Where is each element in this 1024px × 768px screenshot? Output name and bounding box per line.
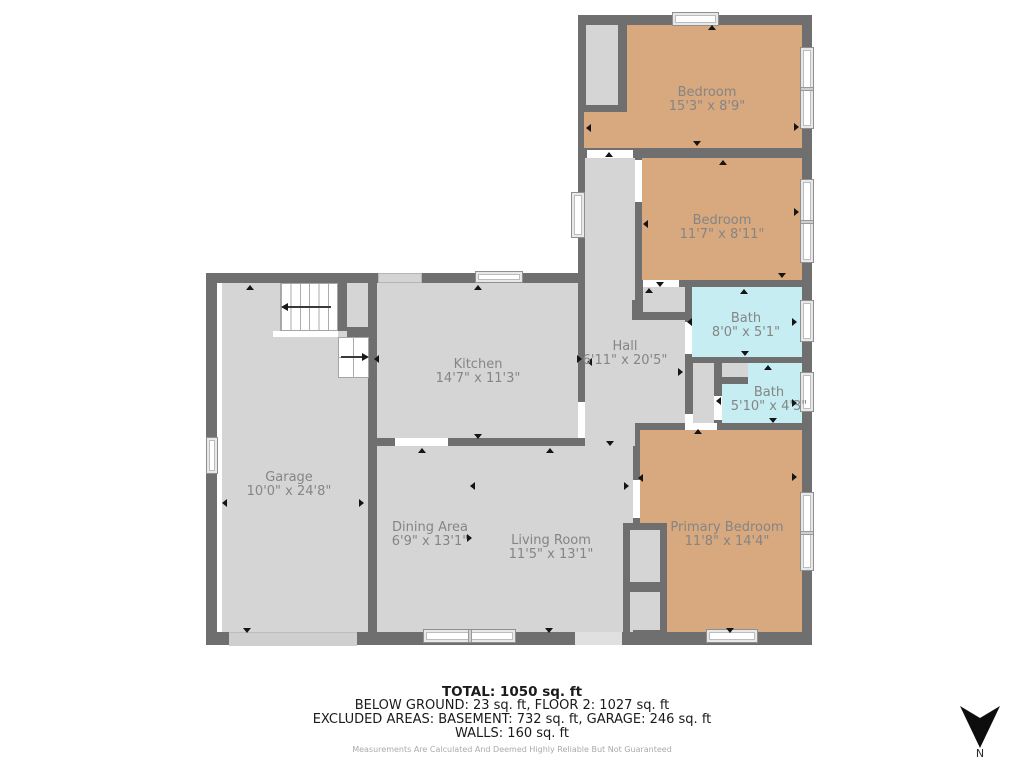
window-bedroom1-top	[672, 12, 719, 26]
room-name: Kitchen	[436, 358, 521, 372]
window-hall-left	[571, 192, 585, 238]
floor-passage	[693, 363, 714, 423]
arrow-marker	[474, 285, 482, 290]
opening-kitchen-dining	[395, 438, 448, 446]
arrow-marker	[678, 368, 683, 376]
window-bedroom1-right	[800, 47, 814, 129]
floor-closet-primary-1	[630, 530, 660, 582]
arrow-marker	[606, 441, 614, 446]
arrow-marker	[719, 160, 727, 165]
arrow-marker	[794, 123, 799, 131]
door-bedroom2	[635, 160, 642, 202]
arrow-marker	[624, 482, 629, 490]
wall-stairs-v	[338, 283, 347, 331]
arrow-marker	[645, 288, 653, 293]
arrow-marker	[792, 318, 797, 326]
arrow-marker	[708, 25, 716, 30]
room-dims: 8'0" x 5'1"	[712, 326, 780, 340]
summary-total: TOTAL: 1050 sq. ft	[0, 685, 1024, 699]
room-dims: 6'11" x 20'5"	[583, 354, 668, 368]
wall-closet-right	[618, 25, 627, 112]
arrow-marker	[778, 273, 786, 278]
window-primary-right	[800, 492, 814, 571]
wall-bath2-notch	[717, 377, 748, 384]
wall-stairs-h	[347, 327, 377, 337]
room-label-dining: Dining Area 6'9" x 13'1"	[392, 521, 468, 549]
floor-hall-corridor	[585, 158, 635, 446]
arrow-marker	[586, 124, 591, 132]
wall-closets-divider	[630, 582, 667, 592]
room-name: Bath	[731, 386, 807, 400]
wall-hall-stub-h	[637, 312, 685, 320]
window-living-bottom	[423, 629, 516, 643]
stairs-upper-direction-line	[285, 306, 331, 308]
arrow-marker	[605, 152, 613, 157]
room-label-garage: Garage 10'0" x 24'8"	[247, 471, 332, 499]
front-door-opening	[575, 632, 622, 645]
opening-kitchen-hall	[578, 402, 585, 438]
room-dims: 5'10" x 4'3"	[731, 400, 807, 414]
room-name: Dining Area	[392, 521, 468, 535]
stairs-edge-strip	[273, 331, 338, 337]
arrow-marker	[243, 628, 251, 633]
door-bath1	[685, 322, 692, 354]
arrow-marker	[694, 429, 702, 434]
room-label-primary: Primary Bedroom 11'8" x 14'4"	[670, 521, 783, 549]
window-bedroom2-right	[800, 179, 814, 263]
arrow-marker	[222, 499, 227, 507]
stairs-down-arrow-icon	[362, 353, 369, 361]
summary-line2: BELOW GROUND: 23 sq. ft, FLOOR 2: 1027 s…	[0, 699, 1024, 713]
room-dims: 11'8" x 14'4"	[670, 535, 783, 549]
floor-closet-top	[586, 25, 618, 105]
north-arrow-icon	[956, 702, 1004, 750]
floor-bath-2-notch	[722, 363, 748, 378]
arrow-marker	[643, 220, 648, 228]
arrow-marker	[545, 628, 553, 633]
north-label: N	[956, 747, 1004, 760]
room-label-bath-2: Bath 5'10" x 4'3"	[731, 386, 807, 414]
arrow-marker	[764, 365, 772, 370]
arrow-marker	[726, 628, 734, 633]
arrow-marker	[656, 282, 664, 287]
room-label-living: Living Room 11'5" x 13'1"	[509, 534, 594, 562]
arrow-marker	[687, 318, 692, 326]
room-dims: 11'5" x 13'1"	[509, 548, 594, 562]
door-primary-left	[633, 480, 640, 518]
arrow-marker	[418, 448, 426, 453]
floor-plan-page: Bedroom 15'3" x 8'9" Bedroom 11'7" x 8'1…	[0, 0, 1024, 768]
room-label-kitchen: Kitchen 14'7" x 11'3"	[436, 358, 521, 386]
wall-closets-top	[623, 523, 667, 530]
room-name: Hall	[583, 340, 668, 354]
room-label-bedroom-1: Bedroom 15'3" x 8'9"	[669, 86, 745, 114]
arrow-marker	[740, 289, 748, 294]
opening-passage	[685, 414, 693, 423]
arrow-marker	[546, 448, 554, 453]
room-label-hall: Hall 6'11" x 20'5"	[583, 340, 668, 368]
room-name: Bedroom	[669, 86, 745, 100]
room-dims: 15'3" x 8'9"	[669, 100, 745, 114]
floor-closet-primary-2	[630, 592, 660, 630]
garage-door	[229, 632, 357, 646]
room-name: Primary Bedroom	[670, 521, 783, 535]
arrow-marker	[792, 473, 797, 481]
arrow-marker	[470, 482, 475, 490]
summary-disclaimer: Measurements Are Calculated And Deemed H…	[0, 743, 1024, 757]
room-dims: 11'7" x 8'11"	[680, 228, 765, 242]
summary-line4: WALLS: 160 sq. ft	[0, 727, 1024, 741]
window-garage-left	[206, 437, 218, 474]
floor-primary-upper	[640, 430, 802, 523]
stairs-up-arrow-icon	[281, 303, 288, 311]
arrow-marker	[374, 355, 379, 363]
summary-line3: EXCLUDED AREAS: BASEMENT: 732 sq. ft, GA…	[0, 713, 1024, 727]
room-dims: 10'0" x 24'8"	[247, 485, 332, 499]
room-dims: 14'7" x 11'3"	[436, 372, 521, 386]
room-label-bath-1: Bath 8'0" x 5'1"	[712, 312, 780, 340]
arrow-marker	[359, 499, 364, 507]
room-dims: 6'9" x 13'1"	[392, 535, 468, 549]
arrow-marker	[769, 418, 777, 423]
arrow-marker	[474, 434, 482, 439]
room-label-bedroom-2: Bedroom 11'7" x 8'11"	[680, 214, 765, 242]
window-kitchen-top	[475, 271, 523, 283]
arrow-marker	[716, 397, 721, 405]
window-bath1-right	[800, 300, 814, 342]
kitchen-back-door	[378, 273, 422, 283]
arrow-marker	[794, 208, 799, 216]
arrow-marker	[246, 285, 254, 290]
arrow-marker	[638, 474, 643, 482]
room-name: Garage	[247, 471, 332, 485]
room-name: Bedroom	[680, 214, 765, 228]
wall-closets-left	[623, 523, 630, 632]
stairs-lower-direction-line	[341, 356, 363, 358]
arrow-marker	[741, 351, 749, 356]
arrow-marker	[693, 141, 701, 146]
arrow-marker	[577, 355, 582, 363]
room-name: Bath	[712, 312, 780, 326]
room-name: Living Room	[509, 534, 594, 548]
